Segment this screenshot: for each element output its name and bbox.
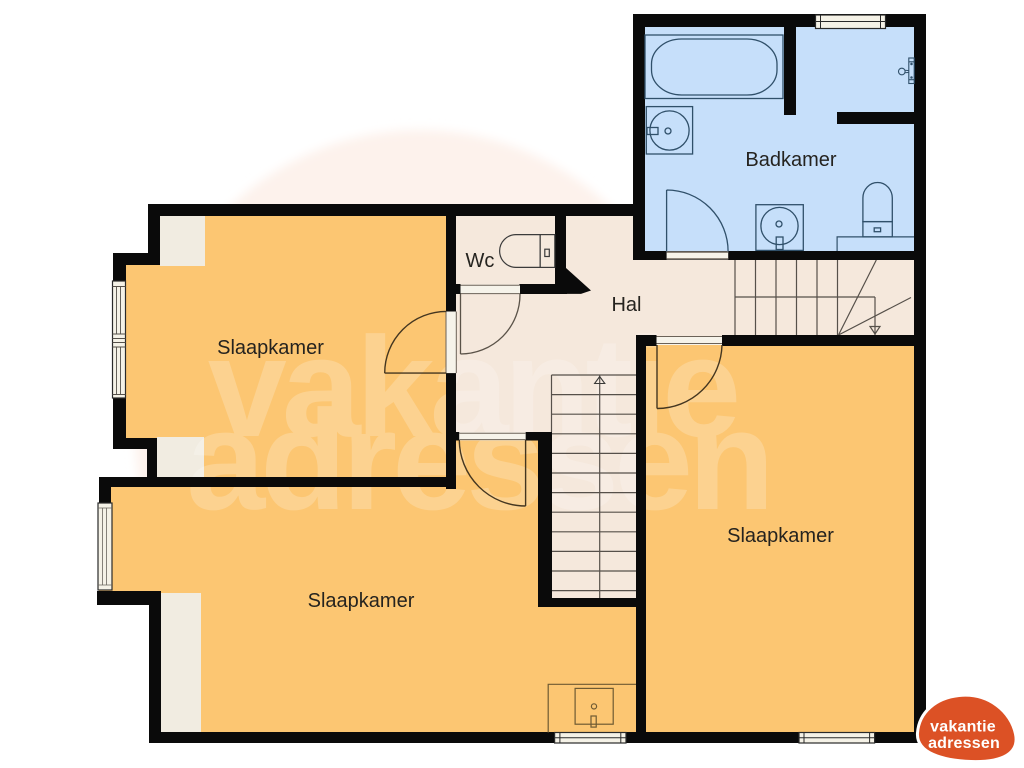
svg-text:Hal: Hal (611, 294, 641, 316)
svg-text:adressen: adressen (928, 735, 1000, 752)
svg-text:vakantie: vakantie (930, 719, 996, 736)
svg-text:Slaapkamer: Slaapkamer (308, 590, 415, 612)
svg-text:adressen: adressen (186, 381, 770, 540)
svg-text:Slaapkamer: Slaapkamer (727, 525, 834, 547)
svg-text:Wc: Wc (466, 250, 495, 272)
svg-text:Slaapkamer: Slaapkamer (217, 337, 324, 359)
svg-text:Badkamer: Badkamer (745, 149, 836, 171)
